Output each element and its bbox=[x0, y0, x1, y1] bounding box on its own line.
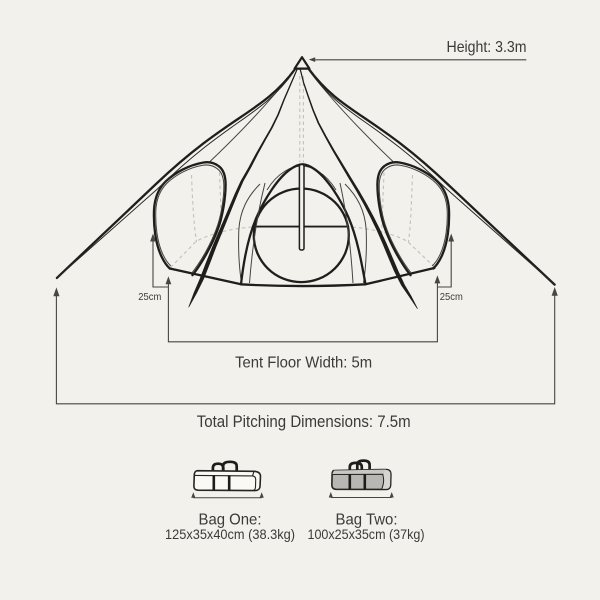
svg-text:25cm: 25cm bbox=[440, 291, 463, 303]
svg-text:125x35x40cm (38.3kg): 125x35x40cm (38.3kg) bbox=[165, 526, 295, 542]
svg-text:Height: 3.3m: Height: 3.3m bbox=[447, 39, 527, 56]
svg-text:Total Pitching Dimensions: 7.5: Total Pitching Dimensions: 7.5m bbox=[197, 412, 411, 431]
svg-text:Tent Floor Width: 5m: Tent Floor Width: 5m bbox=[235, 355, 372, 372]
svg-text:100x25x35cm (37kg): 100x25x35cm (37kg) bbox=[308, 526, 425, 542]
svg-text:25cm: 25cm bbox=[138, 291, 161, 303]
